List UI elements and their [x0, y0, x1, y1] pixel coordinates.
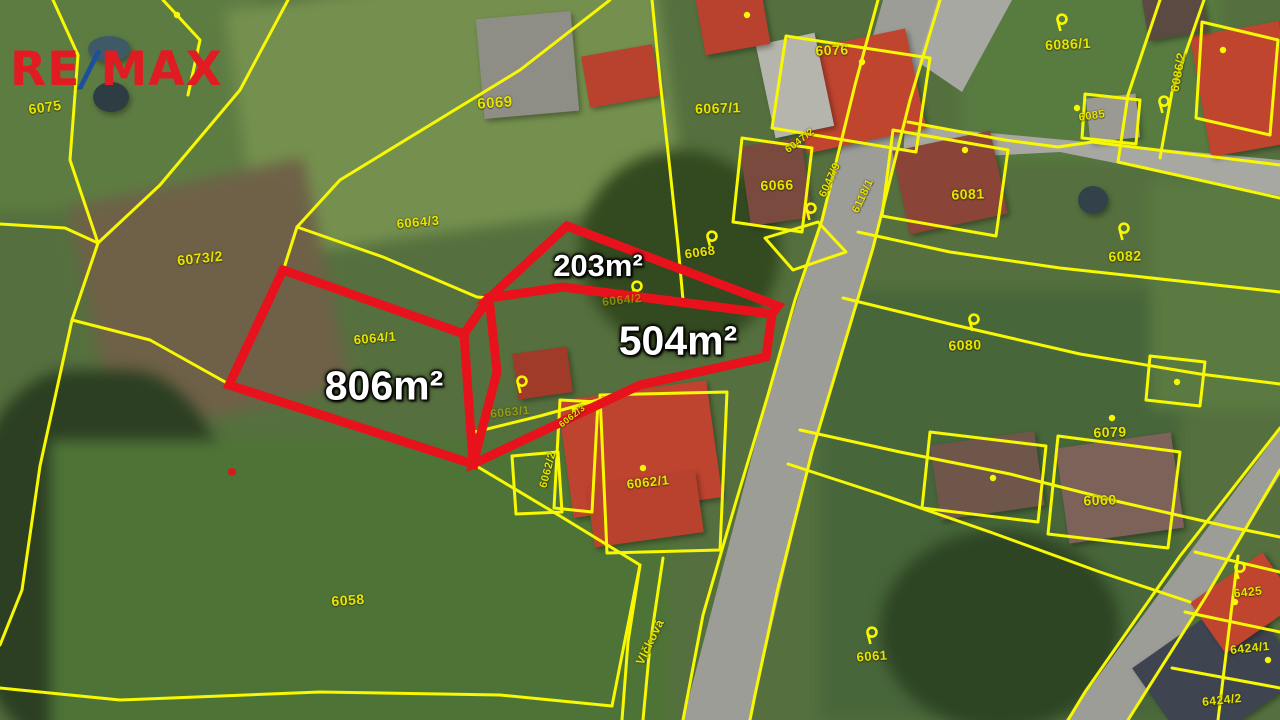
parcel-number-label: 6425 [1233, 584, 1263, 601]
parcel-number-label: 6079 [1093, 423, 1127, 440]
parcel-number-label: 6081 [951, 185, 985, 202]
parcel-number-label: 6061 [856, 647, 888, 664]
parcel-number-label: 6069 [477, 93, 513, 112]
remax-logo-max: MAX [100, 42, 222, 97]
parcel-number-label: 6058 [331, 591, 365, 609]
aerial-map: 607560696073/26064/36064/16064/26063/160… [0, 0, 1280, 720]
plot-504-outline [473, 287, 772, 464]
parcel-number-label: 6076 [815, 41, 849, 58]
parcel-number-label: 6086/1 [1045, 35, 1092, 53]
parcel-number-label: 6060 [1083, 491, 1117, 508]
parcel-number-label: 6067/1 [695, 99, 741, 117]
plot-area-label: 504m² [619, 318, 738, 365]
parcel-number-label: 6066 [760, 176, 794, 193]
parcel-number-label: 6082 [1108, 247, 1142, 264]
parcel-number-label: 6080 [948, 336, 982, 353]
plot-area-label: 806m² [325, 363, 444, 410]
remax-logo: RE/MAX [10, 46, 223, 93]
remax-logo-re: RE [10, 42, 80, 97]
plot-area-label: 203m² [553, 248, 643, 284]
remax-logo-slash: / [80, 42, 100, 97]
